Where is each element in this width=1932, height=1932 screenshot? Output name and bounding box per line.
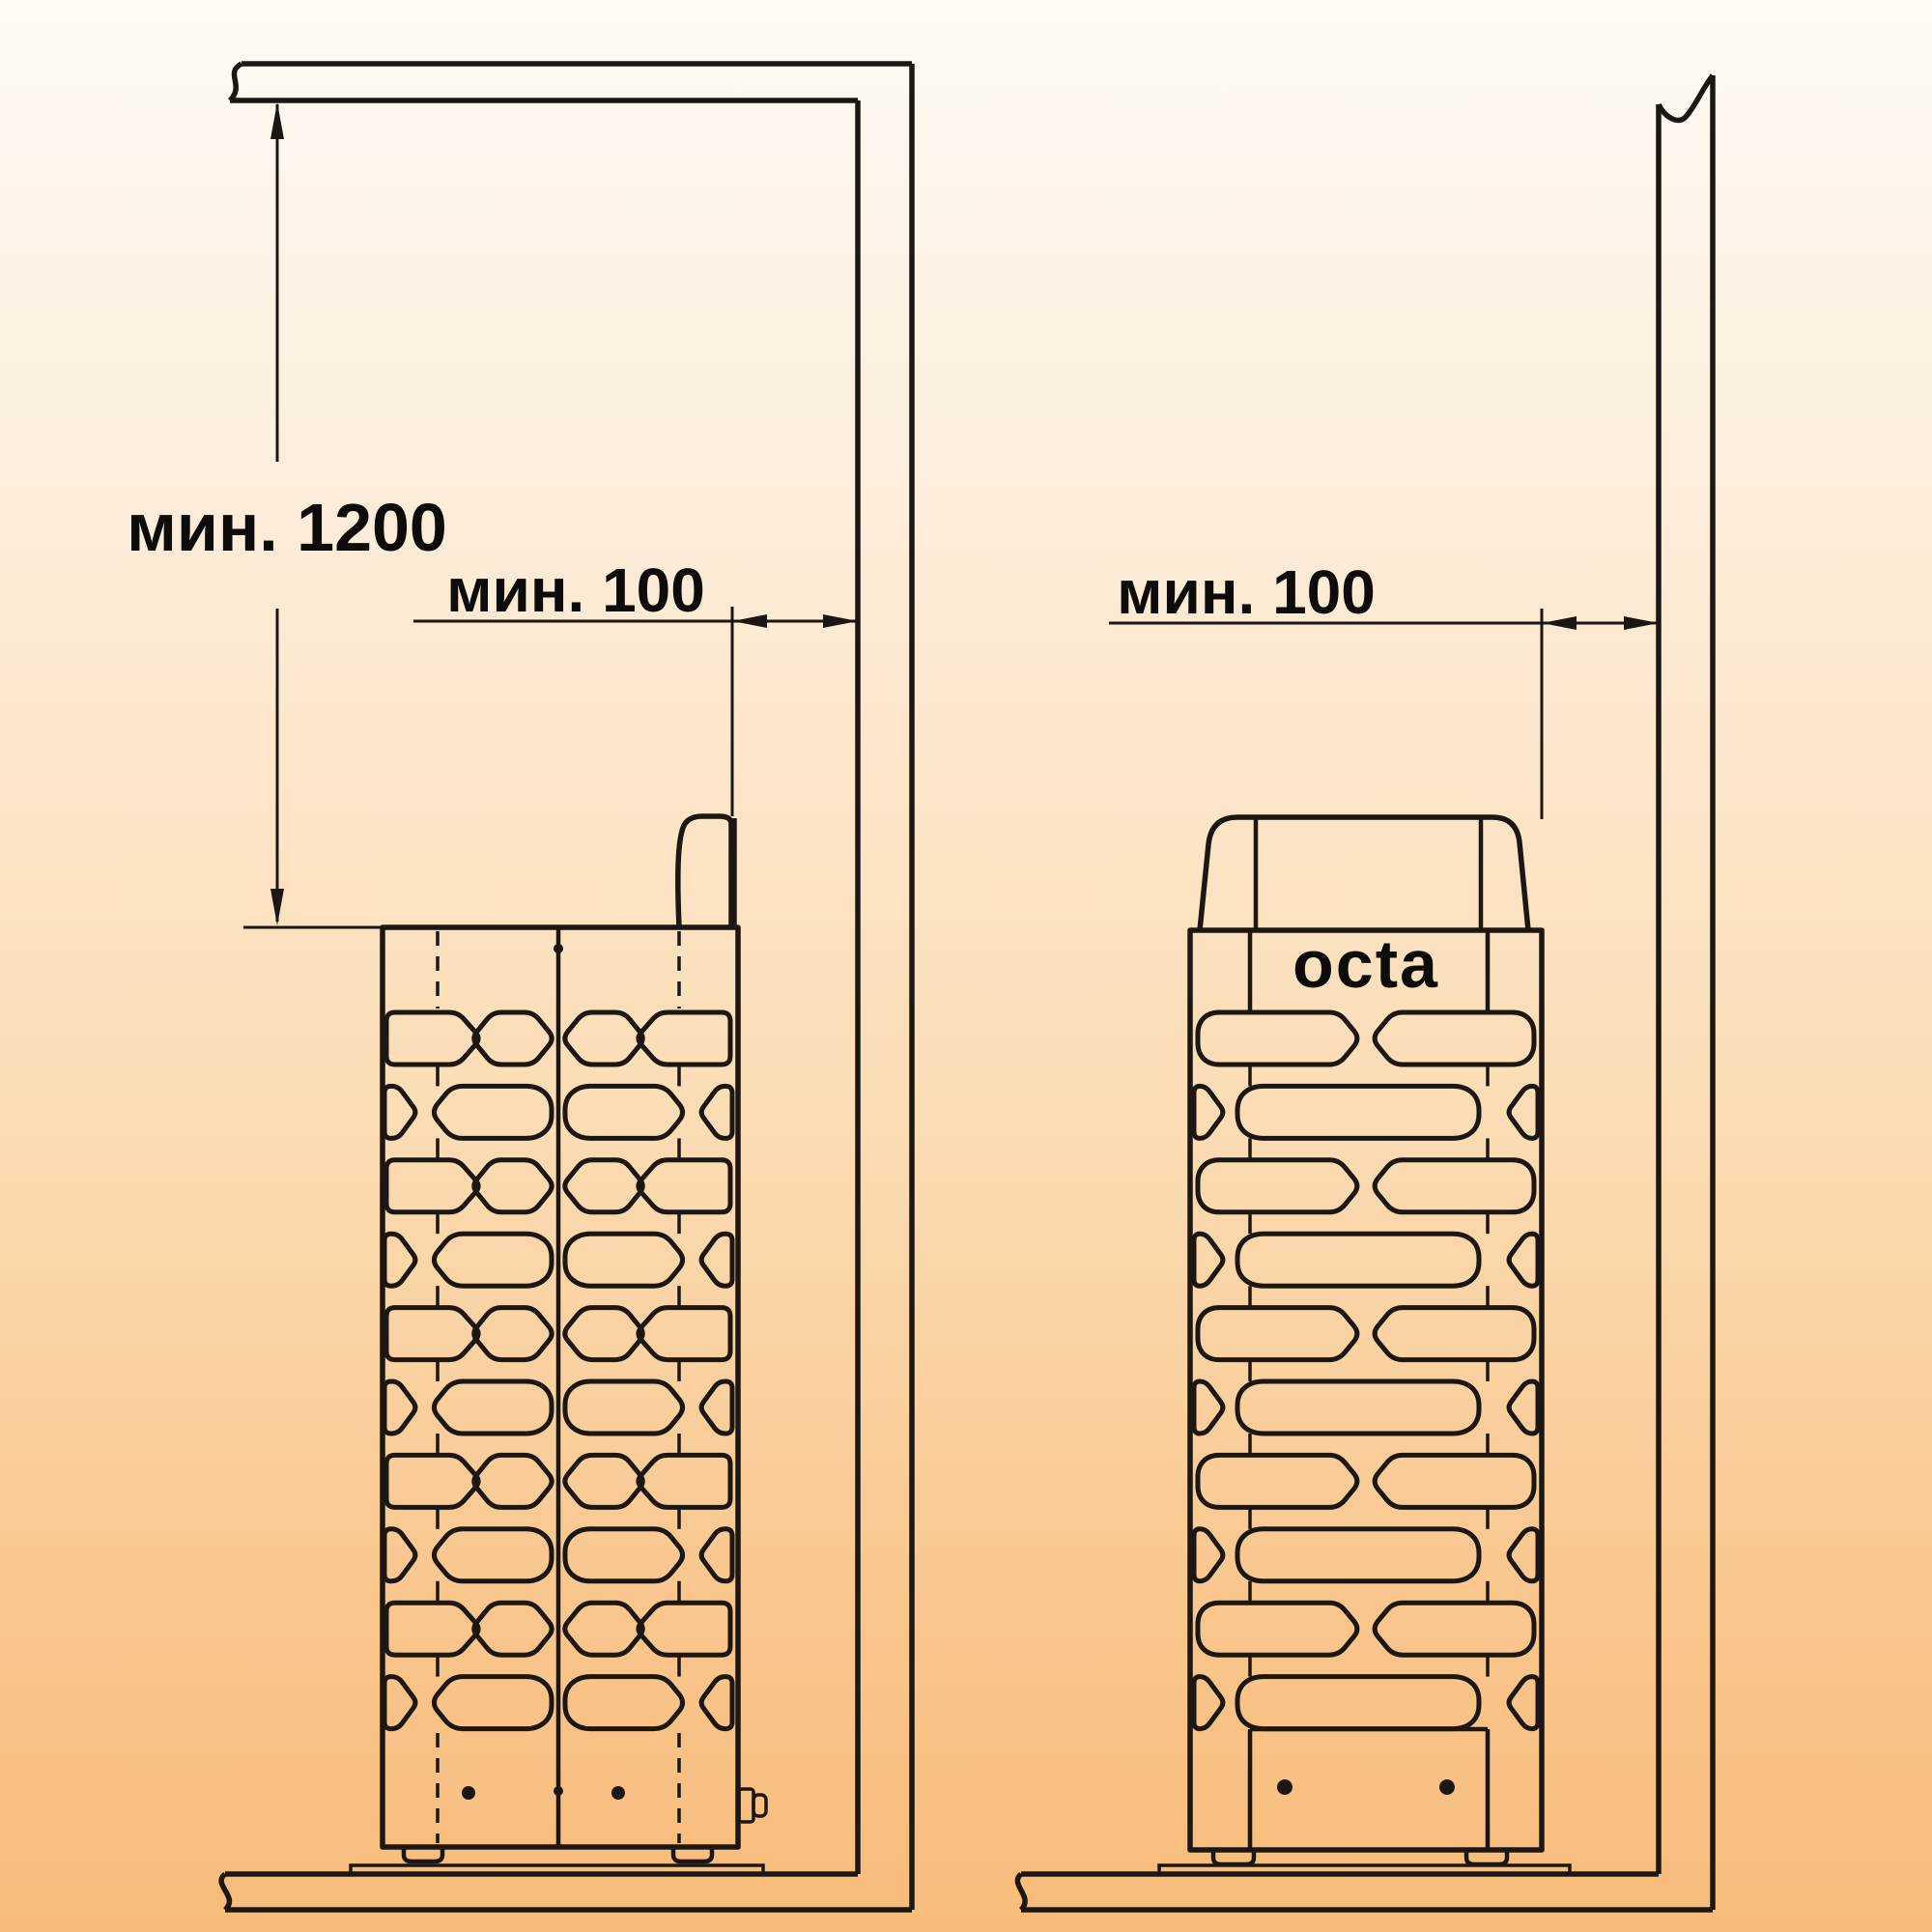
stone bbox=[701, 1234, 732, 1286]
stone bbox=[565, 1086, 683, 1138]
stone bbox=[384, 1677, 415, 1729]
stone bbox=[1194, 1529, 1223, 1581]
stone bbox=[701, 1529, 732, 1581]
stone bbox=[701, 1381, 732, 1434]
wall-break-icon bbox=[1659, 75, 1713, 120]
stone bbox=[1198, 1160, 1357, 1212]
stone bbox=[386, 1455, 478, 1507]
screw-icon bbox=[1439, 1779, 1455, 1795]
center-mark-dot bbox=[554, 944, 563, 953]
floor-break-icon bbox=[221, 1874, 229, 1910]
dim-label-min-100-left: мин. 100 bbox=[446, 555, 705, 625]
stone bbox=[1237, 1529, 1479, 1581]
stone bbox=[565, 1455, 642, 1507]
stone bbox=[1194, 1677, 1223, 1729]
stone bbox=[1237, 1086, 1479, 1138]
stone bbox=[474, 1308, 552, 1360]
stone bbox=[434, 1086, 552, 1138]
stone bbox=[474, 1455, 552, 1507]
stone bbox=[1375, 1160, 1534, 1212]
stone bbox=[474, 1012, 552, 1065]
dimension-min-100-right: мин. 100 bbox=[1109, 557, 1659, 819]
stone bbox=[386, 1160, 478, 1212]
stone bbox=[1509, 1677, 1538, 1729]
floor-break-icon bbox=[1017, 1874, 1025, 1910]
stone bbox=[1237, 1381, 1479, 1434]
conduit-fitting-icon bbox=[739, 1789, 753, 1822]
stone bbox=[434, 1381, 552, 1434]
screw-icon bbox=[1277, 1779, 1293, 1795]
dim-label-min-1200: мин. 1200 bbox=[127, 490, 447, 565]
dim-label-min-100-right: мин. 100 bbox=[1117, 557, 1376, 627]
stone bbox=[384, 1381, 415, 1434]
stone-grid-front bbox=[1194, 1012, 1538, 1729]
dimension-min-100-left: мин. 100 bbox=[413, 555, 858, 816]
stone bbox=[434, 1677, 552, 1729]
heater-front-view: octa bbox=[1159, 817, 1570, 1875]
stone bbox=[639, 1308, 730, 1360]
stone bbox=[639, 1603, 730, 1655]
arrow-up-icon bbox=[270, 102, 284, 139]
stone bbox=[1194, 1086, 1223, 1138]
stone bbox=[701, 1677, 732, 1729]
stone bbox=[1375, 1308, 1534, 1360]
stone bbox=[1198, 1603, 1357, 1655]
arrow-right-icon bbox=[823, 614, 858, 628]
stone bbox=[1194, 1234, 1223, 1286]
stone bbox=[639, 1012, 730, 1065]
stone bbox=[386, 1308, 478, 1360]
stone bbox=[565, 1160, 642, 1212]
floor-left-view bbox=[221, 1874, 912, 1910]
arrow-left-icon bbox=[1542, 616, 1577, 630]
stone bbox=[1237, 1677, 1479, 1729]
stone bbox=[565, 1012, 642, 1065]
stone bbox=[639, 1455, 730, 1507]
screw-icon bbox=[611, 1786, 625, 1800]
stone bbox=[1198, 1308, 1357, 1360]
stone bbox=[701, 1086, 732, 1138]
stone bbox=[565, 1529, 683, 1581]
stone bbox=[1198, 1455, 1357, 1507]
ceiling-break-icon bbox=[230, 64, 241, 100]
arrow-down-icon bbox=[270, 889, 284, 925]
right-view: octa мин. 100 bbox=[1017, 75, 1713, 1910]
heater-side-view bbox=[351, 816, 766, 1875]
stone bbox=[384, 1234, 415, 1286]
stone bbox=[1237, 1234, 1479, 1286]
stone bbox=[1509, 1234, 1538, 1286]
stone bbox=[639, 1160, 730, 1212]
ceiling bbox=[230, 64, 912, 100]
stone bbox=[1194, 1381, 1223, 1434]
stone bbox=[384, 1086, 415, 1138]
stone bbox=[565, 1234, 683, 1286]
stone bbox=[1375, 1603, 1534, 1655]
stone bbox=[474, 1160, 552, 1212]
conduit-fitting-knob-icon bbox=[753, 1795, 766, 1816]
stone bbox=[386, 1012, 478, 1065]
center-mark-dot bbox=[554, 1786, 563, 1796]
stone bbox=[1198, 1012, 1357, 1065]
installation-clearance-diagram: мин. 1200 мин. 100 bbox=[0, 0, 1932, 1932]
stone bbox=[565, 1381, 683, 1434]
wall-left-view bbox=[858, 64, 912, 1910]
heater-back-cowl bbox=[678, 816, 731, 927]
stone bbox=[1509, 1381, 1538, 1434]
stone bbox=[434, 1234, 552, 1286]
stone bbox=[1375, 1012, 1534, 1065]
stone bbox=[565, 1603, 642, 1655]
left-view: мин. 1200 мин. 100 bbox=[127, 64, 912, 1910]
screw-icon bbox=[462, 1786, 475, 1800]
stone bbox=[434, 1529, 552, 1581]
floor-right-view bbox=[1017, 1874, 1713, 1910]
stone bbox=[474, 1603, 552, 1655]
stone bbox=[1375, 1455, 1534, 1507]
wall-right-view bbox=[1659, 75, 1713, 1910]
brand-logo-text: octa bbox=[1293, 926, 1439, 1002]
stone bbox=[386, 1603, 478, 1655]
stone bbox=[1509, 1529, 1538, 1581]
arrow-left-icon bbox=[732, 614, 767, 628]
stone bbox=[565, 1308, 642, 1360]
stone bbox=[565, 1677, 683, 1729]
stone bbox=[384, 1529, 415, 1581]
dimension-min-1200: мин. 1200 bbox=[127, 102, 447, 927]
stone bbox=[1509, 1086, 1538, 1138]
arrow-right-icon bbox=[1624, 616, 1659, 630]
